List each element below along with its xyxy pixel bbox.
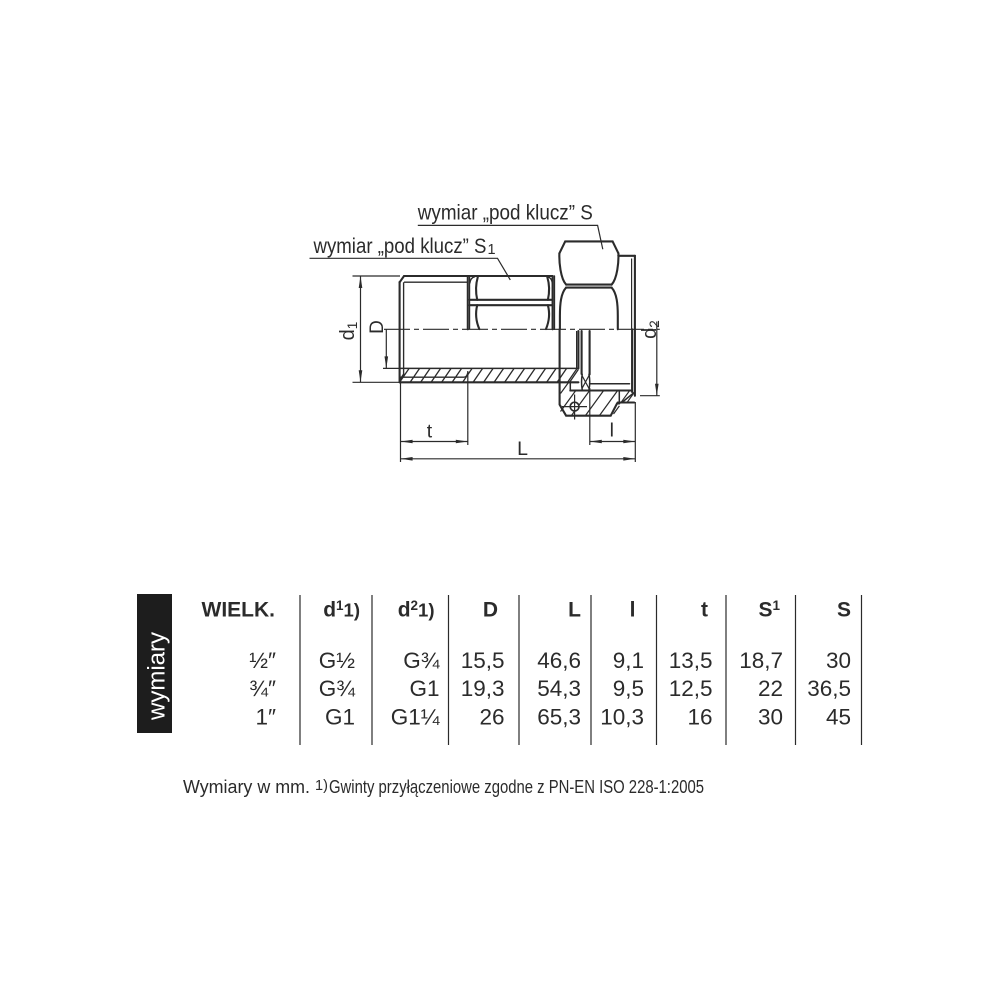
svg-text:10,3: 10,3 <box>600 705 644 730</box>
svg-text:1): 1) <box>315 778 328 794</box>
svg-text:54,3: 54,3 <box>537 676 581 701</box>
svg-text:wymiary: wymiary <box>144 632 171 721</box>
svg-text:G¾: G¾ <box>319 676 356 701</box>
svg-text:D: D <box>367 320 388 334</box>
svg-text:Gwinty przyłączeniowe zgodne z: Gwinty przyłączeniowe zgodne z PN-EN ISO… <box>329 777 704 797</box>
svg-text:G¾: G¾ <box>403 648 440 673</box>
svg-text:G1: G1 <box>325 705 355 730</box>
svg-text:9,1: 9,1 <box>613 648 644 673</box>
svg-text:½″: ½″ <box>249 648 276 673</box>
svg-text:G1¼: G1¼ <box>391 705 440 730</box>
svg-text:45: 45 <box>826 705 851 730</box>
svg-text:t: t <box>701 599 708 622</box>
svg-text:1″: 1″ <box>256 705 277 730</box>
svg-text:L: L <box>568 599 581 622</box>
svg-text:wymiar „pod klucz” S: wymiar „pod klucz” S <box>417 202 593 225</box>
svg-text:D: D <box>483 599 498 622</box>
svg-text:12,5: 12,5 <box>669 676 713 701</box>
svg-text:S: S <box>837 599 851 622</box>
svg-text:22: 22 <box>758 676 783 701</box>
svg-text:16: 16 <box>687 705 712 730</box>
svg-text:13,5: 13,5 <box>669 648 713 673</box>
svg-text:36,5: 36,5 <box>807 676 851 701</box>
svg-text:S1: S1 <box>758 598 780 622</box>
svg-text:l: l <box>630 599 636 622</box>
svg-text:t: t <box>427 420 433 442</box>
svg-text:1: 1 <box>488 242 496 258</box>
svg-text:G½: G½ <box>319 648 356 673</box>
svg-text:19,3: 19,3 <box>461 676 505 701</box>
svg-text:d2: d2 <box>639 320 662 339</box>
svg-text:15,5: 15,5 <box>461 648 505 673</box>
svg-text:d11): d11) <box>323 598 360 622</box>
svg-text:26: 26 <box>479 705 504 730</box>
svg-text:18,7: 18,7 <box>739 648 783 673</box>
svg-text:d21): d21) <box>398 598 435 622</box>
svg-text:30: 30 <box>826 648 851 673</box>
svg-text:WIELK.: WIELK. <box>202 599 276 622</box>
svg-text:l: l <box>610 420 614 442</box>
svg-text:wymiar „pod klucz” S: wymiar „pod klucz” S <box>313 235 487 258</box>
svg-text:d1: d1 <box>337 322 360 341</box>
svg-text:30: 30 <box>758 705 783 730</box>
svg-text:G1: G1 <box>409 676 439 701</box>
svg-text:Wymiary w mm.: Wymiary w mm. <box>183 777 310 797</box>
svg-text:¾″: ¾″ <box>249 676 276 701</box>
svg-text:65,3: 65,3 <box>537 705 581 730</box>
svg-text:46,6: 46,6 <box>537 648 581 673</box>
svg-text:L: L <box>517 438 528 460</box>
svg-text:9,5: 9,5 <box>613 676 644 701</box>
